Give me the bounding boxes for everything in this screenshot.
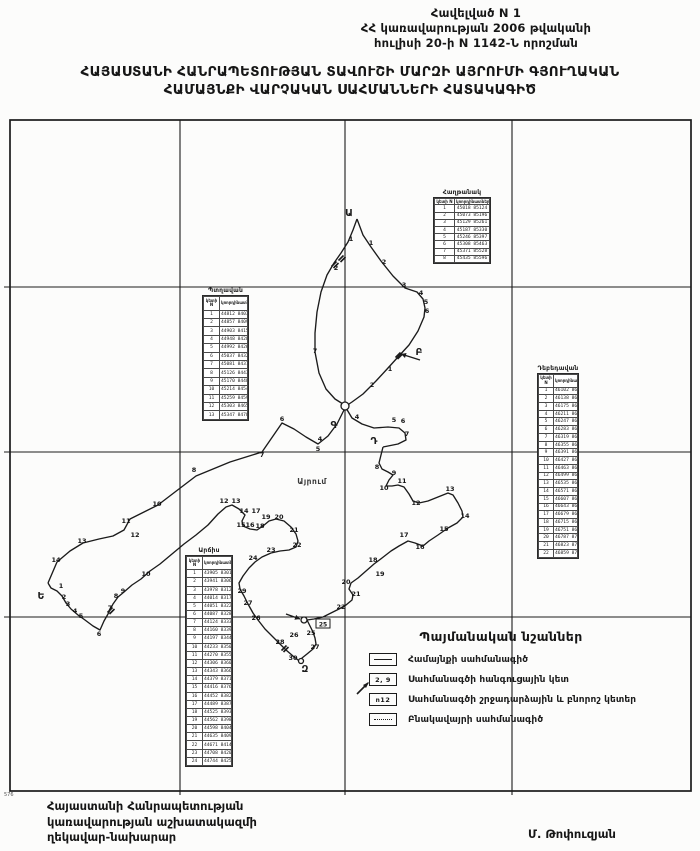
boundary-point-number: 2 (370, 381, 375, 389)
coordinate-table-cell: 14 (187, 676, 203, 684)
coordinate-table-cell: 46859 87105 (554, 549, 578, 557)
coordinate-table-cell: 45214 84542 (220, 386, 248, 394)
coordinate-table-cell: 44343 83661 (203, 668, 232, 676)
legend-item: Համայնքի սահմանագիծ (365, 653, 637, 666)
coordinate-table-row: 2246859 87105 (539, 549, 578, 557)
boundary-point-number: 22 (292, 541, 301, 549)
coordinate-table-cell: 44379 83716 (203, 676, 232, 684)
coordinate-table-cell: 44708 84201 (203, 749, 232, 757)
coordinate-table-cell: 20 (539, 534, 554, 542)
coordinate-table-row: 2244671 84148 (187, 741, 232, 749)
coordinate-table-cell: 12 (539, 472, 554, 480)
boundary-point-number: 16 (415, 543, 425, 551)
coordinate-table-row: 944197 83445 (187, 635, 232, 643)
coordinate-table-cell: 44051 83229 (203, 602, 232, 610)
coordinate-table-cell: 8 (204, 369, 220, 377)
coordinate-table-cell: 44671 84148 (203, 741, 232, 749)
coordinate-table-row: 446211 86169 (539, 410, 578, 418)
boundary-point-number: 5 (79, 612, 84, 620)
coordinate-table-cell: 45308 85463 (455, 241, 490, 248)
coordinate-table-row: 544051 83229 (187, 602, 232, 610)
boundary-point-number: 7 (313, 347, 318, 355)
coordinate-table-row: 1146463 86533 (539, 464, 578, 472)
coordinate-table-row: 845126 84431 (204, 369, 248, 377)
boundary-point-number: 6 (97, 630, 102, 638)
coordinate-table-cell: 45126 84431 (220, 369, 248, 377)
boundary-point-number: 20 (341, 578, 351, 586)
coordinate-table-cell: 19 (539, 526, 554, 534)
coordinate-table-row: 1346535 86637 (539, 480, 578, 488)
coordinate-table-cell: 5 (204, 344, 220, 352)
coordinate-table-grid: կետի Nկոորդինատները143905 83012243941 83… (186, 556, 232, 766)
junction-node-circle (299, 659, 304, 664)
coordinate-table-cell: 45081 84378 (220, 361, 248, 369)
junction-letter: Դ (371, 436, 378, 447)
coordinate-table-cell: 44857 84098 (220, 319, 248, 327)
coordinate-table-cell: 17 (187, 700, 203, 708)
coordinate-table-cell: 21 (187, 733, 203, 741)
boundary-point-number: 1 (59, 582, 64, 590)
boundary-point-number: 25 (306, 629, 316, 637)
coordinate-table-grid: կետի Nկոորդինատները145018 85124245073 85… (434, 198, 490, 263)
coordinate-table-row: 444948 84209 (204, 335, 248, 343)
coordinate-table-cell: 45018 85124 (455, 205, 490, 212)
coordinate-table-cell: 46102 86011 (554, 387, 578, 395)
coordinate-table-row: 1345347 84705 (204, 411, 248, 420)
coordinate-table-cell: 44124 83337 (203, 619, 232, 627)
coordinate-table-title: Հաղթանակ (433, 189, 491, 196)
coordinate-table-cell: 45073 85196 (455, 212, 490, 219)
legend-item-label: Համայնքի սահմանագիծ (408, 655, 528, 665)
signature-name: Մ. Թոփուզյան (528, 827, 616, 841)
coordinate-table-row: 246138 86064 (539, 395, 578, 403)
junction-letter: Բ (416, 347, 423, 358)
coordinate-table-grid: կետի Nկոորդինատները146102 86011246138 86… (538, 374, 578, 558)
coordinate-table-box: կետի Nկոորդինատները145018 85124245073 85… (433, 197, 491, 264)
boundary-point-number: 23 (266, 546, 275, 554)
coordinate-table-row: 744124 83337 (187, 619, 232, 627)
boundary-point-number: 15 (439, 525, 449, 533)
page: Հավելված N 1 ՀՀ կառավարության 2006 թվակա… (0, 0, 700, 851)
coordinate-table-row: 2046787 87001 (539, 534, 578, 542)
coordinate-table-box: կետի Nկոորդինատները144812 84035244857 84… (202, 295, 249, 421)
coordinate-table-row: 545246 85397 (435, 234, 490, 241)
coordinate-table-cell: 44948 84209 (220, 335, 248, 343)
coordinate-table-cell: 46138 86064 (554, 395, 578, 403)
coordinate-table-cell: 19 (187, 717, 203, 725)
coordinate-table-cell: 18 (539, 519, 554, 527)
coordinate-table-cell: 17 (539, 511, 554, 519)
coordinate-table-row: 343978 83121 (187, 586, 232, 594)
coordinate-table-row: 2344708 84201 (187, 749, 232, 757)
junction-letter: Զ (302, 664, 309, 675)
coordinate-table-cell: 10 (539, 457, 554, 465)
coordinate-table-cell: 3 (187, 586, 203, 594)
coordinate-table-cell: 44903 84151 (220, 327, 248, 335)
coordinate-table-cell: 22 (187, 741, 203, 749)
boundary-point-number: 27 (243, 599, 252, 607)
coordinate-table-cell: 45259 84596 (220, 394, 248, 402)
coordinate-table-cell: 44416 83769 (203, 684, 232, 692)
coordinate-table-cell: 43905 83012 (203, 570, 232, 578)
boundary-point-number: 10 (379, 484, 389, 492)
coordinate-table-row: 144812 84035 (204, 310, 248, 318)
boundary-point-number: 3 (66, 600, 71, 608)
coordinate-table-row: 1444379 83716 (187, 676, 232, 684)
signatory-title: Հայաստանի Հանրապետության կառավարության ա… (47, 799, 257, 846)
coordinate-table-cell: 46643 86793 (554, 503, 578, 511)
boundary-point-number: 13 (231, 497, 240, 505)
settlement-label: Այրում (297, 477, 327, 486)
coordinate-table: Դեբեդավանկետի Nկոորդինատները146102 86011… (537, 365, 579, 559)
coordinate-table-cell: 6 (539, 426, 554, 434)
coordinate-table-cell: 44744 84256 (203, 757, 232, 765)
coordinate-table-row: 1045214 84542 (204, 386, 248, 394)
coordinate-table-cell: 45303 84651 (220, 403, 248, 411)
coordinate-table-cell: 44087 83284 (203, 610, 232, 618)
coordinate-table-cell: 13 (204, 411, 220, 420)
coordinate-table-row: 544992 84266 (204, 344, 248, 352)
coordinate-table-cell: 44160 83392 (203, 627, 232, 635)
coordinate-table-cell: 2 (187, 578, 203, 586)
coordinate-table-cell: 11 (187, 651, 203, 659)
coordinate-table: Արճիսկետի Nկոորդինատները143905 830122439… (185, 547, 233, 767)
coordinate-table-cell: 45246 85397 (455, 234, 490, 241)
coordinate-table-row: 1245303 84651 (204, 403, 248, 411)
coordinate-table-cell: 12 (204, 403, 220, 411)
boundary-point-number: 2 (334, 264, 339, 272)
coordinate-table-cell: 5 (539, 418, 554, 426)
coordinate-table-cell: 5 (435, 234, 455, 241)
coordinate-table-cell: 43978 83121 (203, 586, 232, 594)
boundary-point-number: 14 (51, 556, 61, 564)
coordinate-table-row: 1546607 86741 (539, 495, 578, 503)
coordinate-table-cell: 44233 83500 (203, 643, 232, 651)
boundary-point-number: 4 (419, 289, 424, 297)
legend-item-label: Բնակավայրի սահմանագիծ (408, 715, 543, 725)
coordinate-table-box: կետի Nկոորդինատները146102 86011246138 86… (537, 373, 579, 559)
coordinate-table-cell: 15 (187, 684, 203, 692)
coordinate-table-cell: 44270 83553 (203, 651, 232, 659)
coordinate-table-row: 945170 84487 (204, 377, 248, 385)
coordinate-table-row: 844160 83392 (187, 627, 232, 635)
coordinate-table-cell: 11 (204, 394, 220, 402)
boundary-point-number: 7 (108, 604, 113, 612)
coordinate-table-cell: 20 (187, 725, 203, 733)
coordinate-table-cell: 45347 84705 (220, 411, 248, 420)
boundary-point-number: 19 (261, 513, 271, 521)
legend-symbol-line (369, 653, 397, 666)
coordinate-table-cell: 46211 86169 (554, 410, 578, 418)
coordinate-table-cell: 44635 84093 (203, 733, 232, 741)
boundary-point-number: 13 (445, 485, 454, 493)
legend-item-label: Սահմանագծի հանգուցային կետ (408, 675, 569, 685)
coordinate-table-cell: 46715 86897 (554, 519, 578, 527)
junction-node-circle (341, 402, 349, 410)
coordinate-table: Պտղավանկետի Nկոորդինատները144812 8403524… (202, 287, 249, 421)
coordinate-table-cell: 6 (435, 241, 455, 248)
boundary-point-number: 13 (77, 537, 86, 545)
coordinate-table-cell: 12 (187, 659, 203, 667)
coordinate-table-cell: 16 (539, 503, 554, 511)
boundary-point-number: 14 (239, 507, 249, 515)
coordinate-table-cell: 44812 84035 (220, 310, 248, 318)
coordinate-table-cell: 45371 85528 (455, 248, 490, 255)
coordinate-table-row: 845435 85596 (435, 255, 490, 262)
coordinate-table-row: 646283 86273 (539, 426, 578, 434)
legend-symbol-node: 2, 9 (369, 673, 397, 686)
legend-items: Համայնքի սահմանագիծ2, 9Սահմանագծի հանգու… (365, 653, 637, 726)
coordinate-table: Հաղթանակկետի Nկոորդինատները145018 851242… (433, 189, 491, 264)
coordinate-table-cell: 16 (187, 692, 203, 700)
coordinate-table-row: 1144270 83553 (187, 651, 232, 659)
coordinate-table-cell: 46427 86481 (554, 457, 578, 465)
signatory-title-line: ղեկավար-նախարար (47, 830, 257, 846)
coordinate-table-cell: 18 (187, 708, 203, 716)
coordinate-table-header-cell: կոորդինատները (220, 297, 248, 311)
boundary-point-number: 9 (392, 469, 397, 477)
boundary-point-number: 10 (141, 570, 151, 578)
boundary-point-number: 28 (275, 638, 285, 646)
coordinate-table-row: 2044598 84040 (187, 725, 232, 733)
coordinate-table-cell: 1 (539, 387, 554, 395)
coordinate-table-row: 243941 83068 (187, 578, 232, 586)
boundary-point-number: 5 (316, 445, 321, 453)
coordinate-table-row: 645037 84322 (204, 352, 248, 360)
coordinate-table-row: 1944562 83985 (187, 717, 232, 725)
legend-item-label: Սահմանագծի շրջադարձային և բնորոշ կետեր (408, 695, 636, 705)
coordinate-table-cell: 44306 83608 (203, 659, 232, 667)
coordinate-table-row: 1145259 84596 (204, 394, 248, 402)
boundary-point-number: 14 (460, 512, 470, 520)
boundary-point-number: 5 (392, 416, 397, 424)
coordinate-table-row: 1644452 83824 (187, 692, 232, 700)
coordinate-table-row: 1044233 83500 (187, 643, 232, 651)
coordinate-table-cell: 24 (187, 757, 203, 765)
coordinate-table-cell: 46319 86325 (554, 433, 578, 441)
boundary-point-number: 8 (192, 466, 197, 474)
coordinate-table-cell: 4 (539, 410, 554, 418)
coordinate-table-cell: 46535 86637 (554, 480, 578, 488)
coordinate-table-cell: 2 (204, 319, 220, 327)
junction-letter: Գ (331, 420, 338, 431)
coordinate-table-cell: 3 (435, 219, 455, 226)
boundary-point-number: 6 (425, 307, 430, 315)
coordinate-table-row: 1544416 83769 (187, 684, 232, 692)
coordinate-table-row: 746319 86325 (539, 433, 578, 441)
boundary-point-number: 10 (152, 500, 162, 508)
coordinate-table-cell: 46787 87001 (554, 534, 578, 542)
coordinate-table-cell: 4 (435, 226, 455, 233)
coordinate-table-cell: 13 (539, 480, 554, 488)
boundary-point-number: 12 (130, 531, 139, 539)
coordinate-table-row: 346175 86117 (539, 403, 578, 411)
boundary-point-number: 26 (251, 614, 261, 622)
coordinate-table-row: 946391 86429 (539, 449, 578, 457)
coordinate-table-cell: 6 (204, 352, 220, 360)
boundary-point-number: 1 (349, 235, 354, 243)
coordinate-table-cell: 43941 83068 (203, 578, 232, 586)
coordinate-table-row: 1046427 86481 (539, 457, 578, 465)
boundary-point-number: 21 (289, 526, 299, 534)
coordinate-table-cell: 46175 86117 (554, 403, 578, 411)
coordinate-table-title: Պտղավան (202, 287, 249, 294)
coordinate-table-row: 345129 85261 (435, 219, 490, 226)
junction-letter: Ա (345, 208, 353, 219)
legend-item: Բնակավայրի սահմանագիծ (365, 713, 637, 726)
boundary-point-number: 26 (289, 631, 299, 639)
boundary-point-number: 1 (369, 239, 374, 247)
coordinate-table-cell: 3 (204, 327, 220, 335)
boundary-point-number: 24 (248, 554, 258, 562)
coordinate-table-cell: 10 (187, 643, 203, 651)
boundary-point-number: 19 (375, 570, 385, 578)
coordinate-table-title: Դեբեդավան (537, 365, 579, 372)
coordinate-table-row: 444014 83176 (187, 594, 232, 602)
boundary-point-number: 9 (121, 587, 126, 595)
boundary-point-number: 6 (280, 415, 285, 423)
coordinate-table-cell: 46607 86741 (554, 495, 578, 503)
boundary-point-number: 16 (245, 521, 255, 529)
coordinate-table-cell: 46283 86273 (554, 426, 578, 434)
junction-node-circle (301, 617, 307, 623)
boundary-point-number: 20 (274, 513, 284, 521)
coordinate-table-row: 145018 85124 (435, 205, 490, 212)
boundary-point-number: 29 (237, 587, 247, 595)
coordinate-table-row: 745081 84378 (204, 361, 248, 369)
coordinate-table-header-cell: կետի N (539, 375, 554, 388)
coordinate-table-row: 546247 86221 (539, 418, 578, 426)
coordinate-table-cell: 1 (187, 570, 203, 578)
boundary-point-number: 4 (73, 607, 78, 615)
boundary-point-number: 3 (402, 281, 407, 289)
boundary-point-number: 27 (310, 643, 319, 651)
coordinate-table-cell: 46679 86845 (554, 511, 578, 519)
coordinate-table-cell: 45037 84322 (220, 352, 248, 360)
coordinate-table-cell: 45435 85596 (455, 255, 490, 262)
boundary-point-number: 12 (219, 497, 228, 505)
coordinate-table-row: 1846715 86897 (539, 519, 578, 527)
coordinate-table-row: 1344343 83661 (187, 668, 232, 676)
coordinate-table-row: 344903 84151 (204, 327, 248, 335)
coordinate-table-cell: 8 (539, 441, 554, 449)
coordinate-table-row: 645308 85463 (435, 241, 490, 248)
coordinate-table-row: 146102 86011 (539, 387, 578, 395)
legend-symbol-turn: ո12 (369, 693, 397, 706)
coordinate-table-cell: 1 (204, 310, 220, 318)
coordinate-table-cell: 2 (435, 212, 455, 219)
settlement-boundary-sample (374, 719, 392, 720)
coordinate-table-cell: 5 (187, 602, 203, 610)
boundary-point-number: 5 (424, 298, 429, 306)
coordinate-table-cell: 8 (435, 255, 455, 262)
boundary-point-number: 18 (368, 556, 378, 564)
coordinate-table-cell: 4 (187, 594, 203, 602)
coordinate-table-cell: 45170 84487 (220, 377, 248, 385)
coordinate-table-cell: 1 (435, 205, 455, 212)
signatory-title-line: Հայաստանի Հանրապետության (47, 799, 257, 815)
coordinate-table-cell: 7 (539, 433, 554, 441)
coordinate-table-row: 644087 83284 (187, 610, 232, 618)
coordinate-table-header-cell: կոորդինատները (203, 557, 232, 570)
coordinate-table-cell: 44489 83877 (203, 700, 232, 708)
boundary-point-number: 17 (399, 531, 408, 539)
coordinate-table-cell: 46355 86377 (554, 441, 578, 449)
coordinate-table-cell: 23 (187, 749, 203, 757)
coordinate-table-cell: 46499 86585 (554, 472, 578, 480)
coordinate-table-title: Արճիս (185, 547, 233, 554)
legend-item: 2, 9Սահմանագծի հանգուցային կետ (365, 673, 637, 686)
boundary-point-number: 7 (405, 430, 410, 438)
coordinate-table-row: 245073 85196 (435, 212, 490, 219)
coordinate-table-cell: 46463 86533 (554, 464, 578, 472)
legend: Պայմանական նշաններ Համայնքի սահմանագիծ2,… (365, 629, 637, 733)
boundary-point-number: 11 (397, 477, 407, 485)
boundary-point-number: 8 (114, 592, 119, 600)
coordinate-table-row: 1446571 86689 (539, 488, 578, 496)
coordinate-table-row: 745371 85528 (435, 248, 490, 255)
coordinate-table-cell: 46247 86221 (554, 418, 578, 426)
boxed-point-label: 25 (319, 621, 327, 628)
legend-symbol-dashed (369, 713, 397, 726)
coordinate-table-row: 1844525 83932 (187, 708, 232, 716)
community-boundary-line (315, 219, 357, 406)
coordinate-table-header-cell: կետի N (204, 297, 220, 311)
coordinate-table-cell: 44562 83985 (203, 717, 232, 725)
coordinate-table-cell: 46571 86689 (554, 488, 578, 496)
coordinate-table-cell: 7 (435, 248, 455, 255)
boundary-point-number: 18 (255, 522, 265, 530)
coordinate-table-cell: 46391 86429 (554, 449, 578, 457)
coordinate-table-row: 1246499 86585 (539, 472, 578, 480)
boundary-line-sample (374, 659, 392, 660)
corner-mark: 576 (4, 792, 14, 798)
junction-letter: Ե (38, 591, 45, 602)
coordinate-table-cell: 45187 85330 (455, 226, 490, 233)
coordinate-table-row: 1744489 83877 (187, 700, 232, 708)
coordinate-table-box: կետի Nկոորդինատները143905 83012243941 83… (185, 555, 233, 767)
coordinate-table-cell: 3 (539, 403, 554, 411)
coordinate-table-row: 143905 83012 (187, 570, 232, 578)
coordinate-table-cell: 11 (539, 464, 554, 472)
coordinate-table-cell: 45129 85261 (455, 219, 490, 226)
coordinate-table-cell: 6 (187, 610, 203, 618)
coordinate-table-cell: 2 (539, 395, 554, 403)
coordinate-table-cell: 7 (204, 361, 220, 369)
coordinate-table-cell: 44452 83824 (203, 692, 232, 700)
boundary-point-number: 12 (411, 499, 420, 507)
coordinate-table-header-cell: կոորդինատները (554, 375, 578, 388)
boundary-point-number: 2 (382, 258, 387, 266)
boundary-point-number: 22 (336, 603, 345, 611)
boundary-point-number: 4 (318, 435, 323, 443)
coordinate-table-cell: 44525 83932 (203, 708, 232, 716)
coordinate-table-cell: 15 (539, 495, 554, 503)
coordinate-table-row: 445187 85330 (435, 226, 490, 233)
legend-item: ո12Սահմանագծի շրջադարձային և բնորոշ կետե… (365, 693, 637, 706)
coordinate-table-cell: 7 (187, 619, 203, 627)
boundary-point-number: 1 (388, 365, 393, 373)
signatory-title-line: կառավարության աշխատակազմի (47, 815, 257, 831)
coordinate-table-row: 2444744 84256 (187, 757, 232, 765)
coordinate-table-cell: 46751 86949 (554, 526, 578, 534)
boundary-point-number: 30 (288, 654, 298, 662)
boundary-point-number: 17 (251, 507, 260, 515)
boundary-point-number: 4 (355, 413, 360, 421)
coordinate-table-row: 1946751 86949 (539, 526, 578, 534)
coordinate-table-row: 846355 86377 (539, 441, 578, 449)
coordinate-table-cell: 44598 84040 (203, 725, 232, 733)
